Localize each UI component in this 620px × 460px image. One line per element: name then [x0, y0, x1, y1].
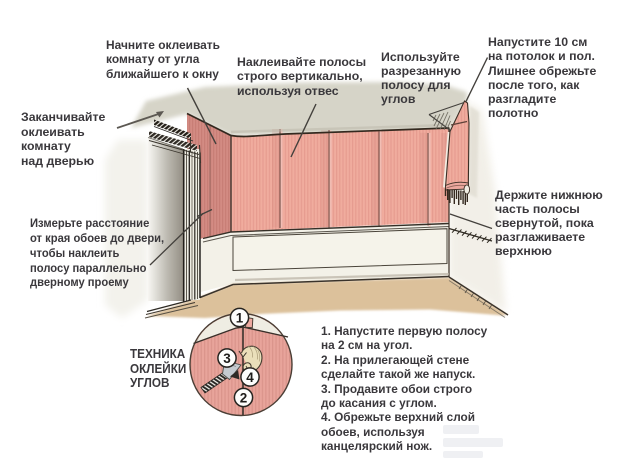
svg-text:3: 3: [223, 351, 231, 366]
svg-text:4: 4: [246, 370, 254, 385]
svg-text:1: 1: [236, 310, 244, 325]
svg-text:2: 2: [240, 390, 248, 405]
